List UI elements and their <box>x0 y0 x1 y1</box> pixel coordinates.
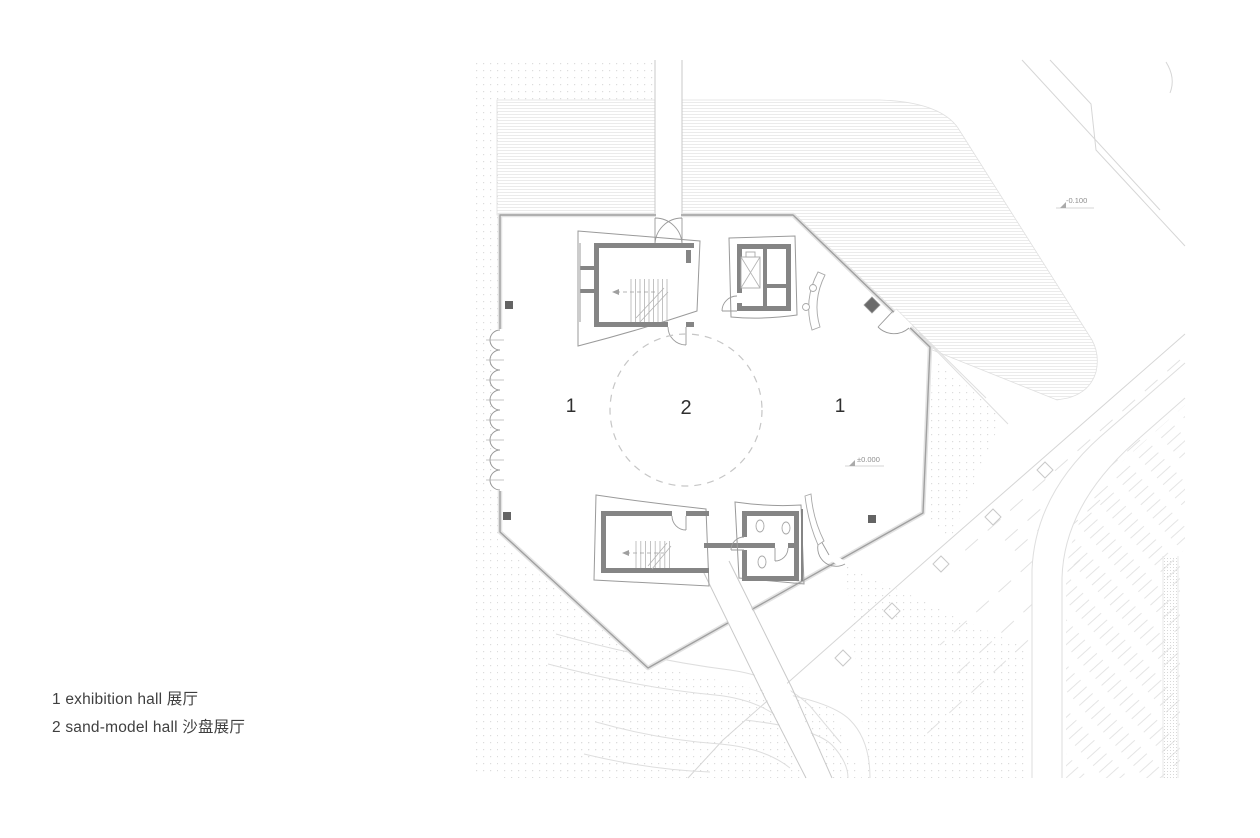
column-se <box>868 515 876 523</box>
level-site-text: -0.100 <box>1066 196 1087 205</box>
column-nw <box>505 301 513 309</box>
legend: 1 exhibition hall 展厅 2 sand-model hall 沙… <box>52 686 245 742</box>
floor-plan-page: ±0.000 -0.100 1 2 1 1 exhibition hall 展厅… <box>0 0 1260 838</box>
road-ne-edge-2 <box>1050 60 1185 246</box>
paving-dots-west-strip <box>472 62 498 774</box>
round-column-2 <box>810 285 817 292</box>
north-entrance-gap <box>656 200 681 220</box>
road-ne-edge-1 <box>1022 60 1160 210</box>
column-sw <box>503 512 511 520</box>
paving-dots-north <box>498 62 658 100</box>
texture-band <box>1163 556 1178 778</box>
room-label-1-east: 1 <box>835 396 846 417</box>
road-curve-detail <box>1166 62 1172 93</box>
level-floor-text: ±0.000 <box>857 455 880 464</box>
paving-dots-east <box>926 355 1002 540</box>
legend-item-sand-model-hall: 2 sand-model hall 沙盘展厅 <box>52 714 245 742</box>
elevator <box>741 252 760 288</box>
legend-item-exhibition-hall: 1 exhibition hall 展厅 <box>52 686 245 714</box>
room-label-1-west: 1 <box>566 396 577 417</box>
room-label-2-center: 2 <box>680 397 691 419</box>
round-column-1 <box>803 304 810 311</box>
paving-dots-southeast <box>845 565 1025 778</box>
north-walkway-fill <box>655 60 682 218</box>
